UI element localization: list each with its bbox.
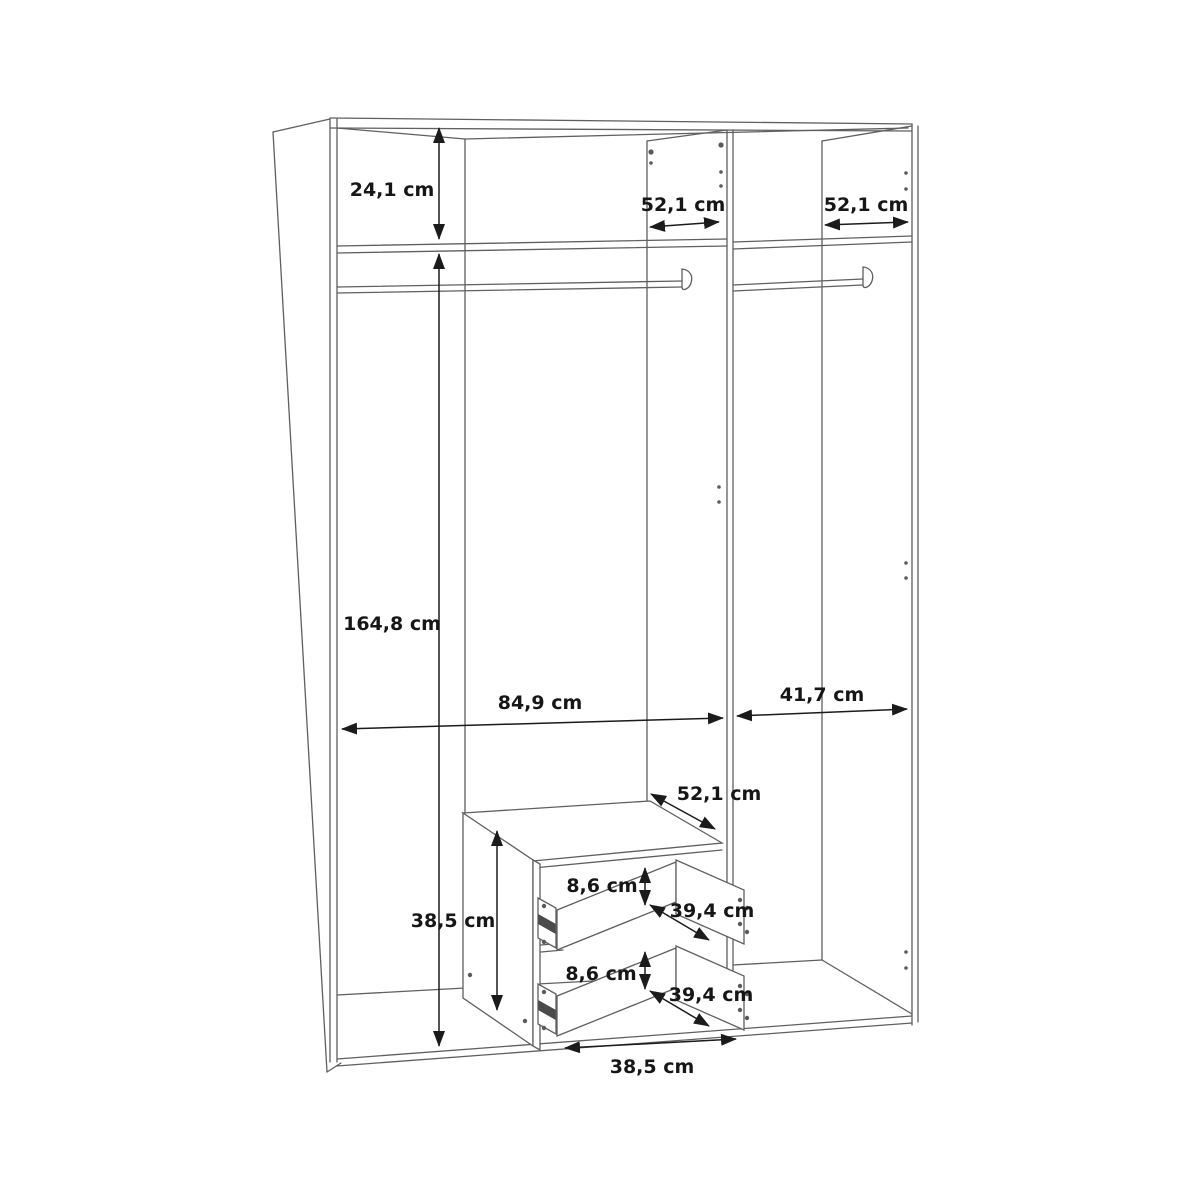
screw-icon (717, 485, 721, 489)
dimension-label: 38,5 cm (610, 1056, 695, 1078)
left-rail-top (337, 281, 682, 287)
dimension-label: 164,8 cm (343, 613, 441, 635)
dimension-arrow (342, 718, 723, 729)
top-shelf (337, 236, 912, 253)
bottom-front-edge-a (337, 1016, 912, 1059)
screw-icon (904, 950, 908, 954)
dimension-label: 8,6 cm (565, 963, 636, 985)
left-panel-bottom-edge (327, 1063, 341, 1072)
dimension-arrow (650, 222, 719, 227)
screw-icon (649, 161, 653, 165)
dimension-label: 39,4 cm (670, 900, 755, 922)
screw-icon (468, 973, 472, 977)
left-rail-hook-icon (682, 269, 692, 290)
drawer-unit-shelf-edge-b (541, 950, 563, 952)
screw-icon (745, 930, 749, 934)
screw-icon (542, 940, 546, 944)
screw-icon (738, 1008, 742, 1012)
right-rail-bottom (733, 285, 863, 291)
dimension-label: 84,9 cm (498, 692, 583, 714)
dimension-callouts: 24,1 cm 52,1 cm 52,1 cm 164,8 cm 84,9 cm… (342, 128, 908, 1078)
screw-icon (904, 561, 908, 565)
hanging-rails (337, 267, 873, 293)
screw-icon (542, 904, 546, 908)
dimension-label: 39,4 cm (669, 984, 754, 1006)
left-panel-top-edge (273, 119, 330, 132)
screw-icon (738, 922, 742, 926)
screw-icon (717, 500, 721, 504)
dimension-label: 38,5 cm (411, 910, 496, 932)
right-rail-top (733, 279, 863, 285)
lower-drawer-side-wall (557, 948, 676, 1036)
ceiling-left-edge (337, 128, 465, 139)
dimension-label: 41,7 cm (780, 684, 865, 706)
left-panel-outer-edge (273, 132, 327, 1072)
dimension-label: 52,1 cm (824, 194, 909, 216)
dimension-arrow (825, 222, 908, 225)
dimension-drawing-page: 24,1 cm 52,1 cm 52,1 cm 164,8 cm 84,9 cm… (0, 0, 1200, 1200)
right-panel-top-edge (822, 126, 912, 141)
wardrobe-dimension-drawing: 24,1 cm 52,1 cm 52,1 cm 164,8 cm 84,9 cm… (0, 0, 1200, 1200)
dim-top-shelf-section-height: 24,1 cm (350, 128, 439, 239)
shelf-left-bottom-edge (337, 246, 727, 253)
dimension-label: 8,6 cm (566, 875, 637, 897)
dim-lower-drawer-front-height: 8,6 cm (565, 952, 645, 989)
screw-icon (648, 149, 653, 154)
dimension-label: 52,1 cm (641, 194, 726, 216)
dimension-label: 52,1 cm (677, 783, 762, 805)
dimension-label: 24,1 cm (350, 179, 435, 201)
screw-icon (745, 1016, 749, 1020)
screw-icon (904, 171, 908, 175)
divider-top-edge (647, 130, 727, 141)
top-panel-outer-edge (330, 118, 912, 124)
dim-left-compartment-width: 84,9 cm (342, 692, 723, 729)
screw-icon (523, 1019, 527, 1023)
screw-icon (904, 966, 908, 970)
dim-top-shelf-depth-left: 52,1 cm (641, 194, 726, 227)
screw-icon (718, 142, 723, 147)
floor-left-edge (337, 988, 465, 995)
screw-icon (542, 990, 546, 994)
left-rail-bottom (337, 287, 682, 293)
floor-back-edge-right (733, 960, 822, 965)
dim-drawer-unit-width: 38,5 cm (565, 1039, 736, 1078)
screw-icon (904, 187, 908, 191)
right-panel-base-edge (822, 960, 912, 1014)
dim-top-shelf-depth-right: 52,1 cm (824, 194, 909, 225)
shelf-left-front-edge (337, 239, 727, 246)
screw-icon (542, 1026, 546, 1030)
screw-icon (719, 170, 723, 174)
screw-icon (719, 184, 723, 188)
screw-icon (904, 576, 908, 580)
right-rail-hook-icon (863, 267, 873, 288)
